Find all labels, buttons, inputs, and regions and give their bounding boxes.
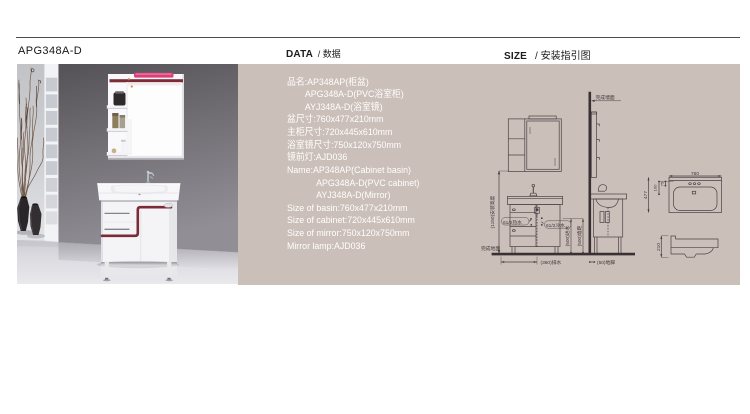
svg-text:(1150)安装高度: (1150)安装高度 — [489, 195, 496, 228]
svg-text:760: 760 — [691, 171, 699, 177]
svg-text:(360)排水: (360)排水 — [541, 259, 562, 266]
svg-text:61/2冷水: 61/2冷水 — [546, 222, 565, 229]
svg-text:(50)地脚: (50)地脚 — [597, 259, 615, 266]
svg-text:75: 75 — [659, 181, 664, 186]
svg-text:100: 100 — [653, 184, 658, 191]
svg-text:477: 477 — [643, 191, 649, 199]
svg-text:完成地面: 完成地面 — [481, 245, 500, 252]
svg-text:完成墙面: 完成墙面 — [596, 94, 615, 101]
svg-text:61/2热水: 61/2热水 — [503, 219, 522, 226]
svg-text:(500)墙距: (500)墙距 — [576, 225, 583, 246]
svg-text:210: 210 — [656, 243, 662, 251]
